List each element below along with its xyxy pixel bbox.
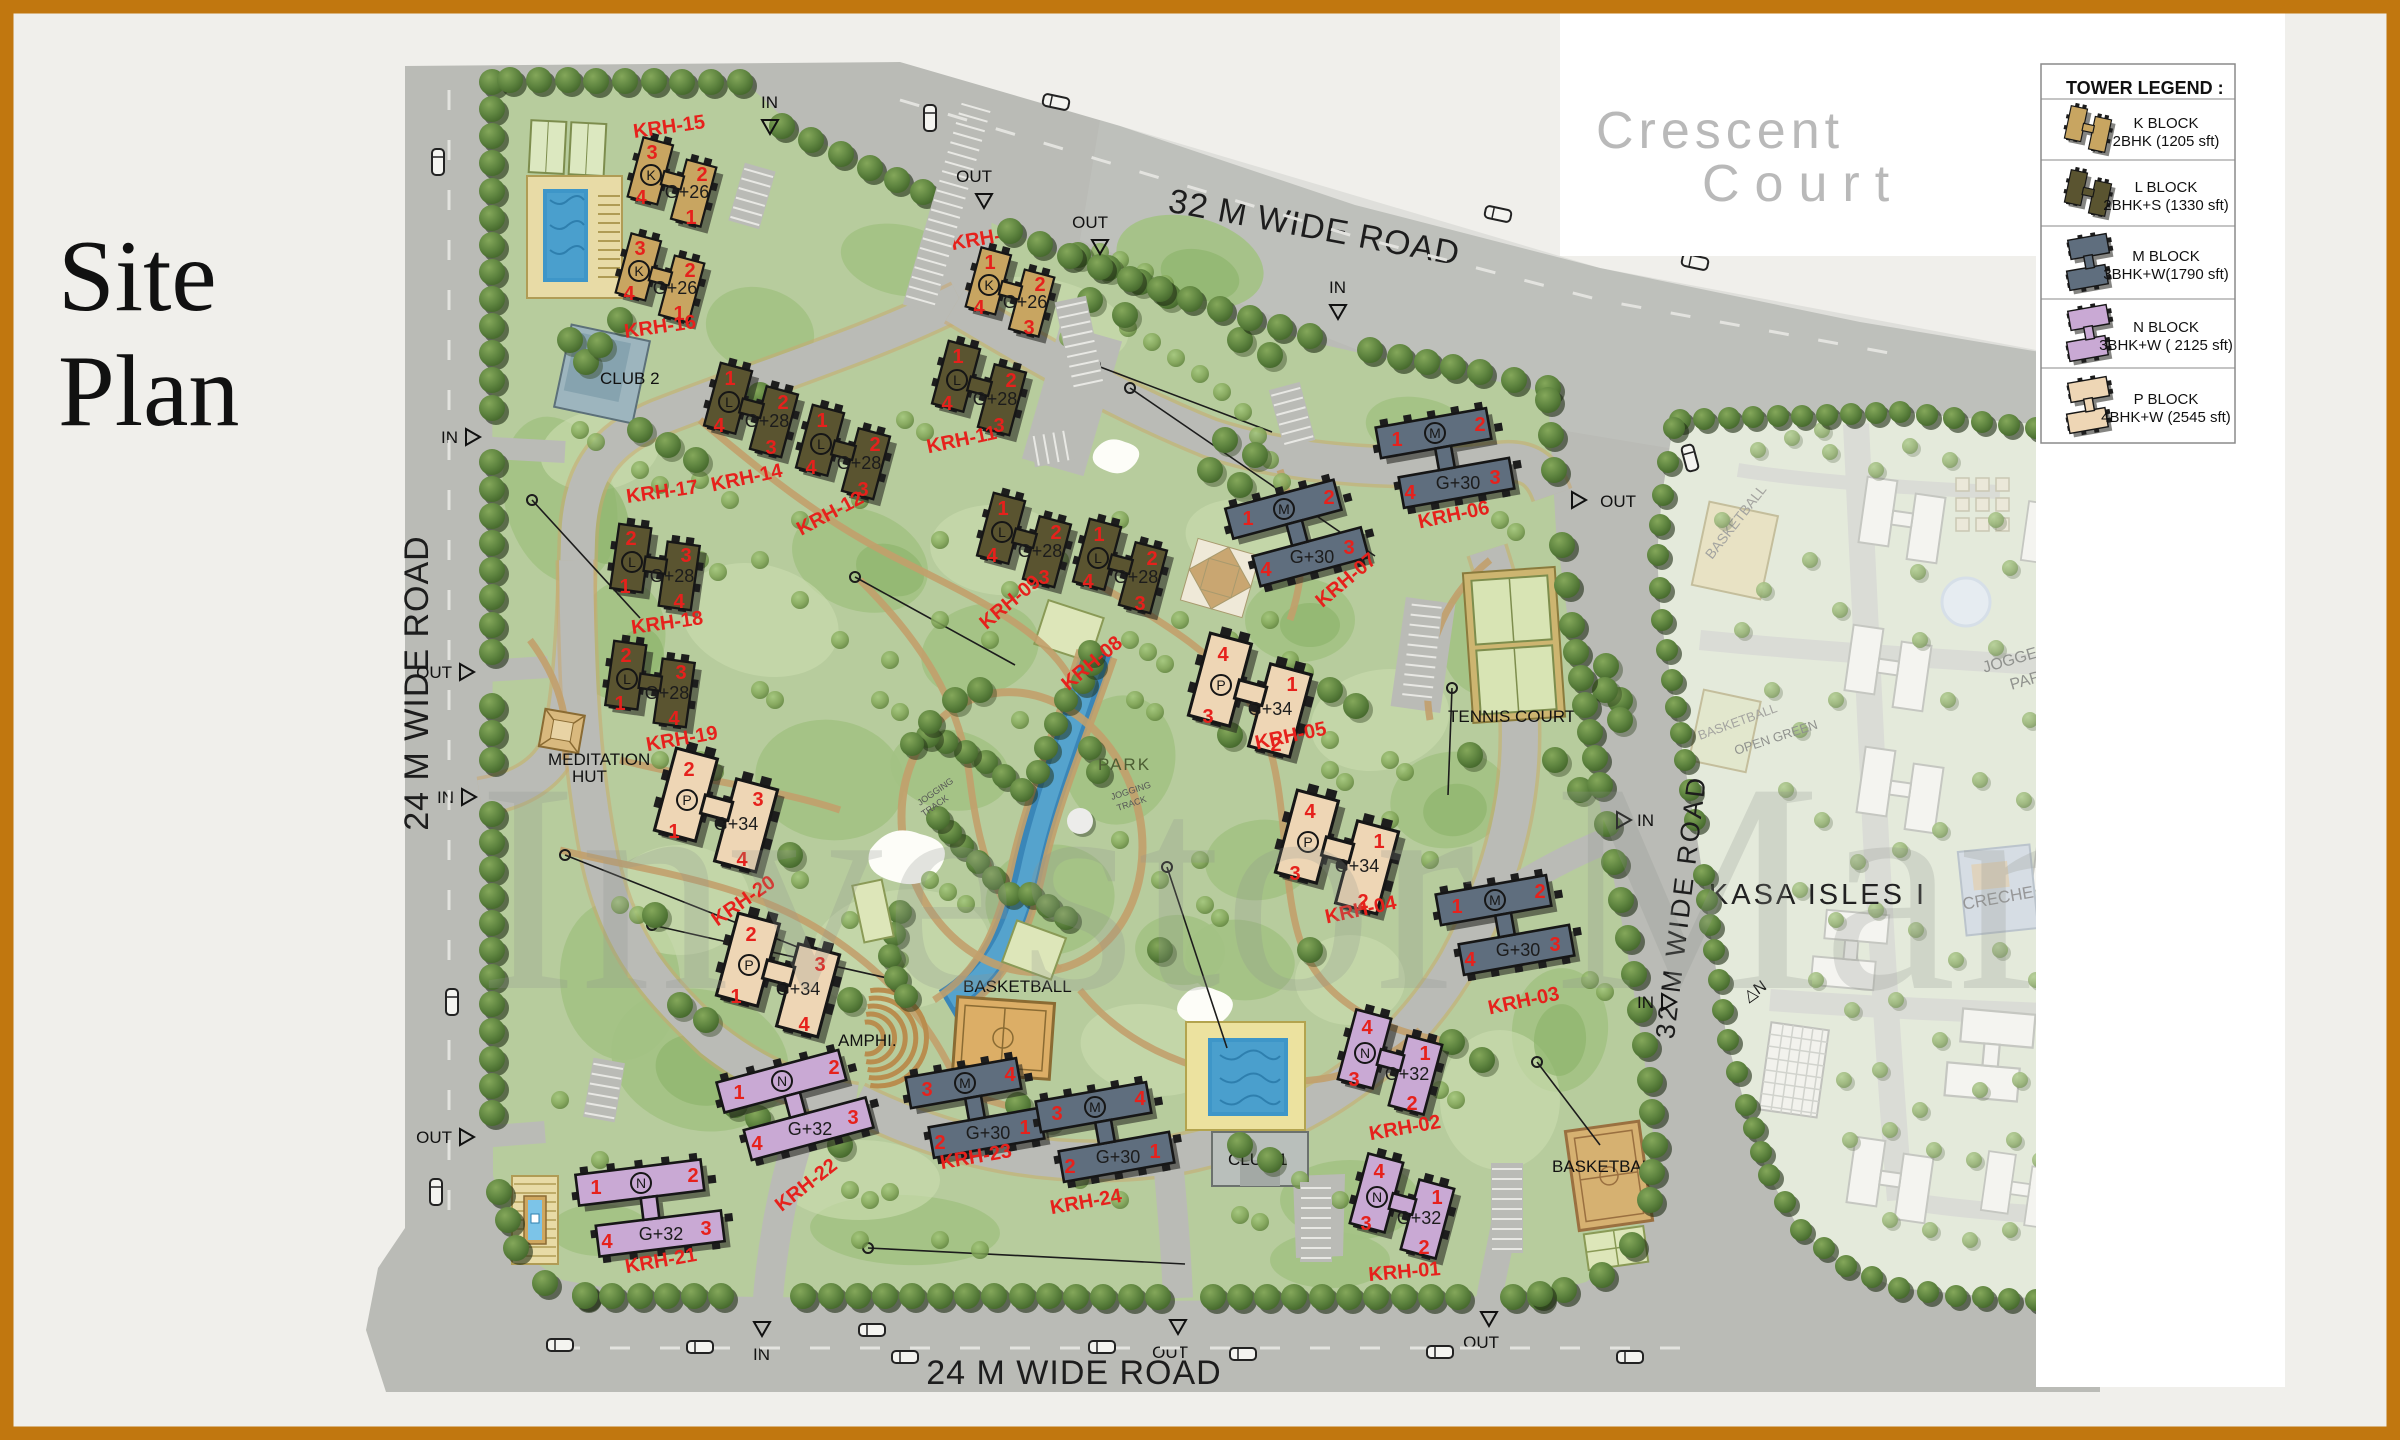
- svg-text:1: 1: [1242, 508, 1253, 530]
- svg-text:1: 1: [1019, 1117, 1030, 1139]
- svg-text:3: 3: [1023, 317, 1034, 339]
- svg-text:1: 1: [816, 410, 827, 432]
- svg-text:2BHK (1205 sft): 2BHK (1205 sft): [2113, 133, 2220, 150]
- svg-text:4: 4: [986, 545, 998, 567]
- svg-text:G+28: G+28: [645, 683, 690, 703]
- svg-text:2: 2: [620, 645, 631, 667]
- svg-text:2: 2: [1418, 1237, 1429, 1259]
- svg-text:Court: Court: [1702, 155, 1904, 213]
- svg-text:P BLOCK: P BLOCK: [2134, 391, 2199, 408]
- svg-text:1: 1: [984, 252, 995, 274]
- svg-text:2: 2: [687, 1165, 698, 1187]
- svg-text:4: 4: [941, 393, 953, 415]
- svg-text:M: M: [1278, 501, 1290, 517]
- svg-text:3: 3: [675, 662, 686, 684]
- svg-text:1: 1: [997, 498, 1008, 520]
- svg-text:L: L: [998, 524, 1006, 540]
- svg-text:L: L: [1094, 550, 1102, 566]
- svg-text:K: K: [634, 263, 644, 279]
- svg-text:OUT: OUT: [1152, 1343, 1188, 1362]
- svg-text:Site: Site: [58, 220, 217, 333]
- svg-text:G+30: G+30: [966, 1123, 1011, 1143]
- svg-text:L BLOCK: L BLOCK: [2135, 179, 2198, 196]
- svg-text:3: 3: [1360, 1213, 1371, 1235]
- svg-text:3: 3: [847, 1107, 858, 1129]
- svg-text:L: L: [953, 372, 961, 388]
- svg-text:L: L: [817, 436, 825, 452]
- svg-text:L: L: [725, 394, 733, 410]
- svg-text:1: 1: [685, 207, 696, 229]
- svg-text:OUT: OUT: [956, 167, 992, 186]
- svg-text:2: 2: [625, 528, 636, 550]
- svg-text:N: N: [777, 1073, 787, 1089]
- svg-text:K BLOCK: K BLOCK: [2133, 115, 2198, 132]
- svg-text:Plan: Plan: [58, 335, 239, 448]
- svg-text:1: 1: [590, 1177, 601, 1199]
- svg-text:4: 4: [601, 1231, 613, 1253]
- svg-text:N: N: [636, 1175, 646, 1191]
- svg-text:4: 4: [635, 187, 647, 209]
- svg-text:4: 4: [805, 457, 817, 479]
- svg-text:P: P: [1216, 677, 1225, 693]
- svg-text:G+32: G+32: [1397, 1208, 1442, 1228]
- svg-text:G+32: G+32: [1385, 1064, 1430, 1084]
- svg-text:G+26: G+26: [665, 182, 710, 202]
- svg-text:4: 4: [1217, 644, 1229, 666]
- svg-text:1: 1: [724, 368, 735, 390]
- svg-text:N: N: [1372, 1189, 1382, 1205]
- svg-text:4: 4: [623, 283, 635, 305]
- svg-text:3: 3: [1348, 1069, 1359, 1091]
- svg-text:4: 4: [1260, 559, 1272, 581]
- svg-text:G+28: G+28: [837, 453, 882, 473]
- svg-text:L: L: [628, 554, 636, 570]
- svg-text:2: 2: [1474, 414, 1485, 436]
- svg-text:G+30: G+30: [1436, 473, 1481, 493]
- svg-text:OUT: OUT: [1600, 492, 1636, 511]
- svg-text:4: 4: [973, 297, 985, 319]
- svg-text:4BHK+W (2545 sft): 4BHK+W (2545 sft): [2101, 409, 2231, 426]
- svg-text:3: 3: [1489, 467, 1500, 489]
- svg-text:3: 3: [765, 437, 776, 459]
- svg-text:TOWER LEGEND :: TOWER LEGEND :: [2066, 78, 2224, 98]
- svg-text:1: 1: [619, 576, 630, 598]
- svg-text:24 M WIDE ROAD: 24 M WIDE ROAD: [398, 535, 436, 830]
- svg-text:4: 4: [713, 415, 725, 437]
- svg-text:1: 1: [1093, 524, 1104, 546]
- svg-text:4: 4: [1373, 1161, 1385, 1183]
- svg-text:1: 1: [952, 346, 963, 368]
- svg-text:3: 3: [680, 545, 691, 567]
- svg-text:CLUB 2: CLUB 2: [600, 369, 660, 388]
- svg-text:3: 3: [1051, 1103, 1062, 1125]
- svg-text:4: 4: [751, 1133, 763, 1155]
- svg-text:OUT: OUT: [1072, 213, 1108, 232]
- svg-text:G+32: G+32: [788, 1119, 833, 1139]
- svg-text:1: 1: [1149, 1141, 1160, 1163]
- svg-text:K: K: [984, 277, 994, 293]
- svg-text:3: 3: [1343, 537, 1354, 559]
- svg-text:G+34: G+34: [1248, 699, 1293, 719]
- svg-text:G+28: G+28: [1018, 541, 1063, 561]
- svg-text:3: 3: [1134, 593, 1145, 615]
- svg-text:K: K: [646, 167, 656, 183]
- svg-text:2: 2: [828, 1057, 839, 1079]
- svg-text:N BLOCK: N BLOCK: [2133, 319, 2199, 336]
- svg-text:G+26: G+26: [1003, 292, 1048, 312]
- svg-text:1: 1: [733, 1082, 744, 1104]
- svg-text:1: 1: [614, 693, 625, 715]
- svg-text:2BHK+S (1330 sft): 2BHK+S (1330 sft): [2103, 197, 2228, 214]
- svg-text:4: 4: [1082, 571, 1094, 593]
- svg-text:3: 3: [700, 1218, 711, 1240]
- svg-text:4: 4: [1004, 1064, 1016, 1086]
- svg-text:3: 3: [646, 142, 657, 164]
- svg-text:Crescent: Crescent: [1596, 102, 1844, 160]
- svg-text:M: M: [1429, 425, 1441, 441]
- svg-text:1: 1: [1286, 674, 1297, 696]
- svg-text:G+26: G+26: [653, 278, 698, 298]
- svg-text:3: 3: [634, 238, 645, 260]
- svg-text:G+30: G+30: [1290, 547, 1335, 567]
- svg-text:2: 2: [1406, 1093, 1417, 1115]
- svg-text:4: 4: [1134, 1088, 1146, 1110]
- svg-text:3BHK+W(1790 sft): 3BHK+W(1790 sft): [2103, 266, 2228, 283]
- svg-text:G+28: G+28: [973, 389, 1018, 409]
- svg-text:3BHK+W ( 2125 sft): 3BHK+W ( 2125 sft): [2099, 337, 2233, 354]
- svg-text:G+28: G+28: [745, 411, 790, 431]
- svg-text:M: M: [959, 1075, 971, 1091]
- svg-text:1: 1: [1431, 1187, 1442, 1209]
- svg-text:2: 2: [1064, 1156, 1075, 1178]
- svg-text:M BLOCK: M BLOCK: [2132, 248, 2200, 265]
- svg-text:2: 2: [1323, 487, 1334, 509]
- svg-text:G+28: G+28: [1114, 567, 1159, 587]
- svg-text:G+28: G+28: [650, 566, 695, 586]
- svg-text:4: 4: [1404, 482, 1416, 504]
- svg-text:OUT: OUT: [416, 663, 452, 682]
- svg-text:1: 1: [1391, 429, 1402, 451]
- svg-text:OUT: OUT: [416, 1128, 452, 1147]
- svg-text:G+30: G+30: [1096, 1147, 1141, 1167]
- svg-text:IN: IN: [761, 93, 778, 112]
- svg-text:G+32: G+32: [639, 1224, 684, 1244]
- svg-text:Investor Mart: Investor Mart: [478, 721, 2145, 1053]
- svg-text:3: 3: [921, 1079, 932, 1101]
- svg-text:IN: IN: [437, 788, 454, 807]
- svg-text:L: L: [623, 671, 631, 687]
- svg-text:M: M: [1089, 1099, 1101, 1115]
- svg-text:IN: IN: [1329, 278, 1346, 297]
